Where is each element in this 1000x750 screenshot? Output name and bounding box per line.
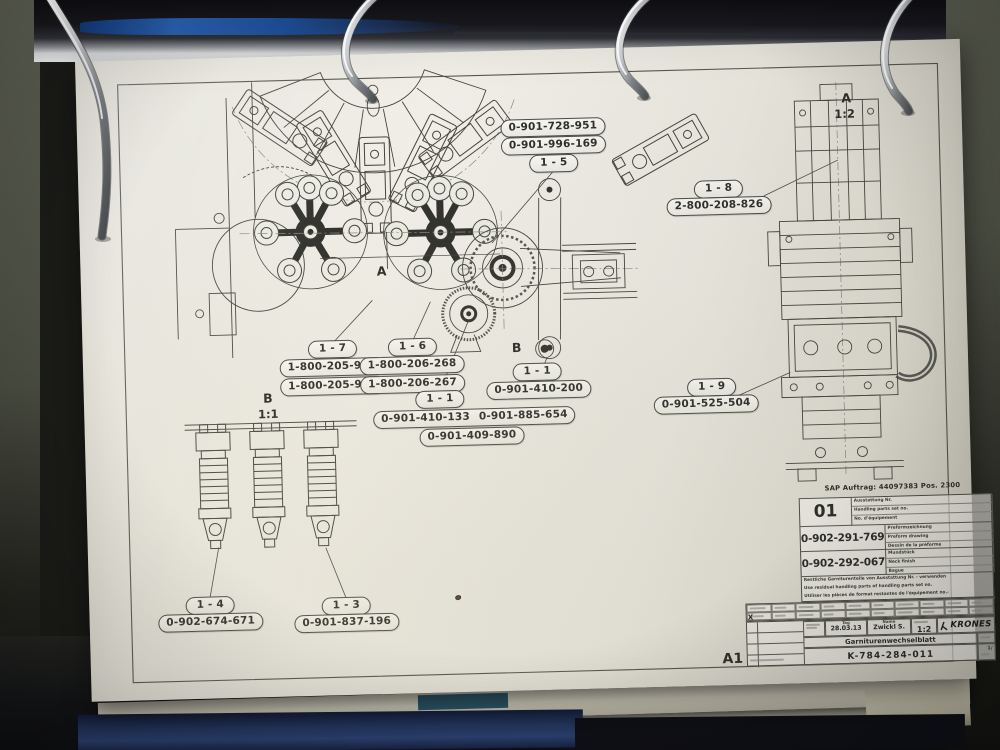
detail-b-view [185, 421, 360, 549]
gear-wheel [442, 287, 496, 352]
brand-cell: KRONES [937, 616, 995, 634]
tolerance-cell [895, 608, 920, 617]
tolerance-check-mark: X [748, 613, 754, 621]
small-cell [977, 632, 995, 643]
scale-cell: 1:2 [911, 618, 937, 635]
sleeve-fold-shadow [454, 31, 924, 38]
part-number: 0-901-885-654 [479, 408, 568, 422]
callout-tag: 1 - 7 [308, 340, 358, 360]
part-pill: 2-800-208-826 [666, 196, 771, 217]
callout-tag: 1 - 1 [415, 390, 465, 410]
preform-number-cell: 0-902-291-769 [800, 525, 886, 552]
part-pill: 1-800-206-268 [359, 355, 464, 376]
title-block-lower: Tag 28.03.13 Name Zwickl S. 1:2 KRONES [746, 615, 996, 667]
part-pill: 0-901-996-169 [501, 135, 606, 156]
wall-background-left [0, 0, 40, 700]
tolerance-cell [870, 609, 895, 618]
part-pill: 0-901-525-504 [654, 394, 759, 415]
star-wheel-left [252, 173, 369, 290]
section-b-letter: B [512, 340, 522, 355]
name-value: Zwickl S. [868, 624, 910, 632]
tolerance-cell [821, 610, 846, 619]
tolerance-cell [845, 609, 870, 618]
set-number-cell: 01 [800, 498, 853, 527]
preform-label-cell: Preformzeichnung Preform drawing Dessin … [885, 522, 994, 550]
date-value: 28.03.13 [826, 625, 866, 633]
part-number: 0-901-410-133 [381, 411, 470, 425]
callout-tag: 1 - 5 [529, 154, 579, 174]
neck-number: 0-902-292-067 [801, 550, 886, 576]
set-label-cell: Ausstattung Nr. Handling parts set no. N… [852, 494, 994, 526]
divider-tab [418, 693, 508, 711]
binder-cover-bottom-dark [575, 714, 965, 750]
part-pill: 0-902-674-671 [158, 612, 263, 633]
tolerance-cell [944, 607, 969, 616]
detail-b-scale: 1:1 [258, 407, 279, 422]
sheet-number: 1/ [979, 644, 995, 651]
detail-a-scale: 1:2 [834, 107, 855, 122]
date-cell: Tag 28.03.13 [825, 619, 867, 636]
binder-blue-stripe [80, 18, 460, 35]
callout-tag: 1 - 6 [388, 338, 438, 358]
neck-label-cell: Mundstück Neck finish Bague [886, 547, 995, 575]
brand-name: KRONES [950, 619, 991, 630]
plan-view [171, 62, 715, 368]
detail-a-view [764, 80, 937, 482]
krones-logo-icon [940, 621, 948, 630]
drawing-sheet: 0-901-728-951 0-901-996-169 1 - 5 1 - 8 … [75, 39, 976, 702]
format-label: A1 [722, 651, 743, 668]
callout-tag: 1 - 1 [512, 362, 562, 382]
revision-row [748, 654, 804, 667]
set-number: 01 [800, 498, 852, 526]
neck-number-cell: 0-902-292-067 [801, 550, 887, 577]
hose-loop [896, 328, 934, 379]
sheet-number-cell: 1/ [978, 643, 996, 660]
editor-cell [803, 621, 825, 638]
tolerance-cell [796, 611, 821, 620]
tolerance-cell [919, 607, 944, 616]
binder-cover-bottom [78, 709, 583, 750]
part-pill: 0-901-837-196 [294, 613, 399, 634]
preform-number: 0-902-291-769 [800, 525, 885, 551]
part-pill: 0-901-409-890 [419, 426, 524, 447]
tensioner-column [534, 178, 565, 359]
section-a-letter: A [377, 263, 387, 278]
part-pill: 0-901-410-200 [486, 379, 591, 400]
title-block-upper: 01 Ausstattung Nr. Handling parts set no… [799, 493, 995, 602]
detail-a-letter: A [841, 90, 851, 105]
tolerance-cell [771, 611, 796, 620]
detail-b-letter: B [263, 390, 273, 405]
binder-photo-scene: 0-901-728-951 0-901-996-169 1 - 5 1 - 8 … [0, 0, 1000, 750]
scale-value: 1:2 [912, 624, 936, 635]
tolerance-cell [969, 606, 994, 615]
name-cell: Name Zwickl S. [867, 618, 911, 635]
